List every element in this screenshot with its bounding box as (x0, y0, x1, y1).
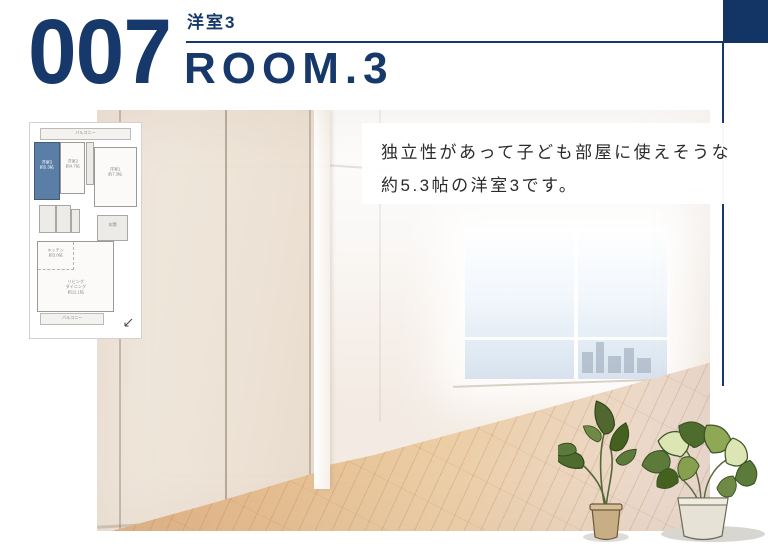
listing-page: 007 洋室3 ROOM.3 (0, 0, 768, 548)
compass-arrow-icon (122, 317, 134, 329)
header-divider (186, 41, 768, 43)
page-title: ROOM.3 (184, 47, 394, 91)
floorplan-room1: 洋室1 約7.3帖 (94, 147, 136, 207)
vertical-accent-line (722, 43, 724, 386)
balcony-bottom: バルコニー (40, 313, 104, 325)
floorplan-bathroom (39, 205, 56, 233)
floorplan: バルコニー 洋室3 約5.3帖 洋室2 約4.7帖 洋室1 約7.3帖 玄関 (29, 122, 142, 339)
floorplan-washroom (56, 205, 72, 233)
plant-illustration (558, 396, 768, 548)
caption-box: 独立性があって子ども部屋に使えそうな 約5.3帖の洋室3です。 (362, 123, 768, 204)
floorplan-room3-highlight: 洋室3 約5.3帖 (34, 142, 60, 200)
page-number: 007 (28, 6, 171, 98)
caption-line: 独立性があって子ども部屋に使えそうな (381, 136, 768, 169)
room-label-jp: 洋室3 (187, 8, 236, 33)
floorplan-room2: 洋室2 約4.7帖 (60, 142, 86, 194)
balcony-top: バルコニー (40, 128, 131, 140)
floorplan-kitchen: キッチン 約3.0帖 (38, 242, 74, 270)
corner-accent-block (723, 0, 768, 43)
floorplan-wc (71, 209, 80, 233)
floorplan-closet (86, 142, 95, 185)
floorplan-entrance: 玄関 (97, 215, 128, 241)
floorplan-living-dining: キッチン 約3.0帖 リビング ダイニング 約12.1帖 (37, 241, 115, 312)
caption-line: 約5.3帖の洋室3です。 (381, 169, 768, 202)
